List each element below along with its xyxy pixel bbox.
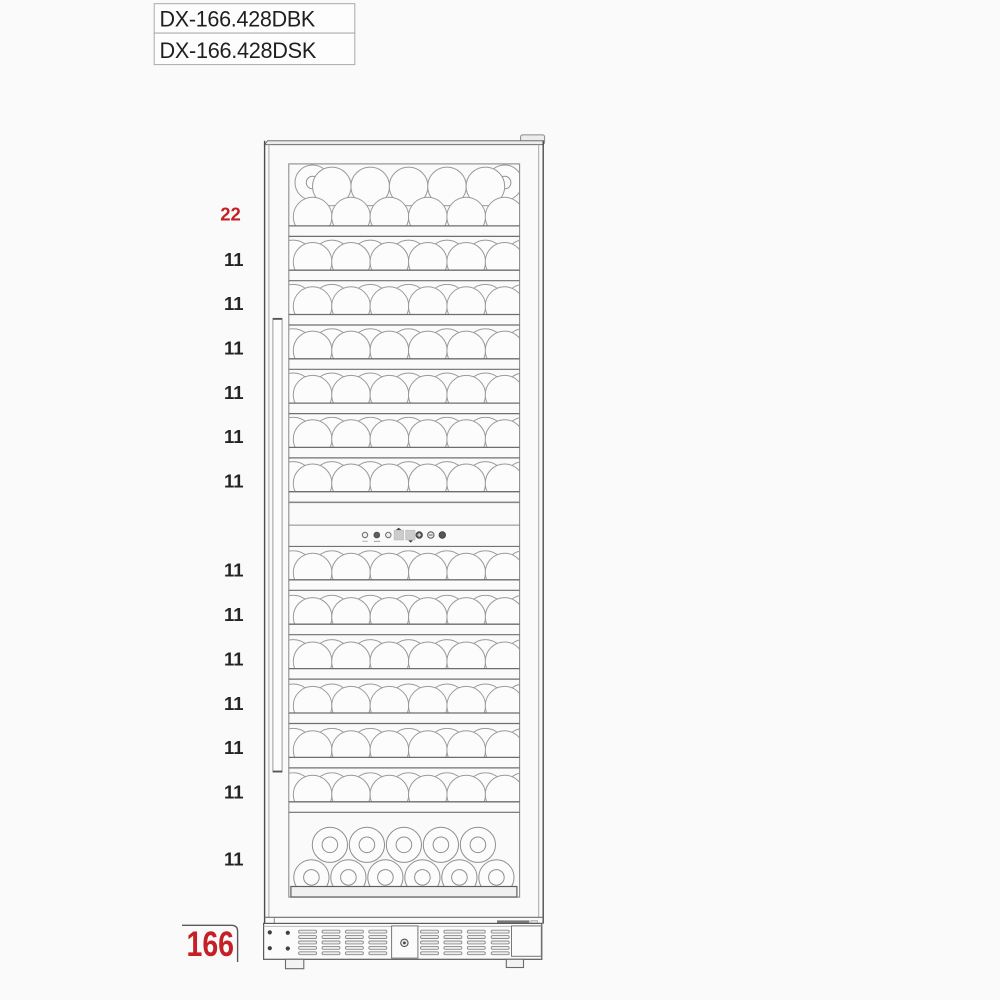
svg-text:11: 11: [224, 249, 244, 270]
svg-text:11: 11: [224, 782, 244, 803]
svg-text:11: 11: [224, 848, 244, 869]
svg-text:11: 11: [224, 293, 244, 314]
svg-text:11: 11: [224, 648, 244, 669]
svg-text:11: 11: [224, 382, 244, 403]
svg-text:11: 11: [224, 737, 244, 758]
svg-text:11: 11: [224, 338, 244, 359]
svg-text:DX-166.428DSK: DX-166.428DSK: [160, 38, 317, 63]
svg-text:11: 11: [224, 693, 244, 714]
svg-text:11: 11: [224, 426, 244, 447]
svg-text:DX-166.428DBK: DX-166.428DBK: [160, 7, 316, 32]
svg-text:11: 11: [224, 470, 244, 491]
svg-text:11: 11: [224, 560, 244, 581]
svg-text:22: 22: [220, 203, 241, 224]
svg-text:166: 166: [187, 925, 235, 964]
svg-text:11: 11: [224, 604, 244, 625]
